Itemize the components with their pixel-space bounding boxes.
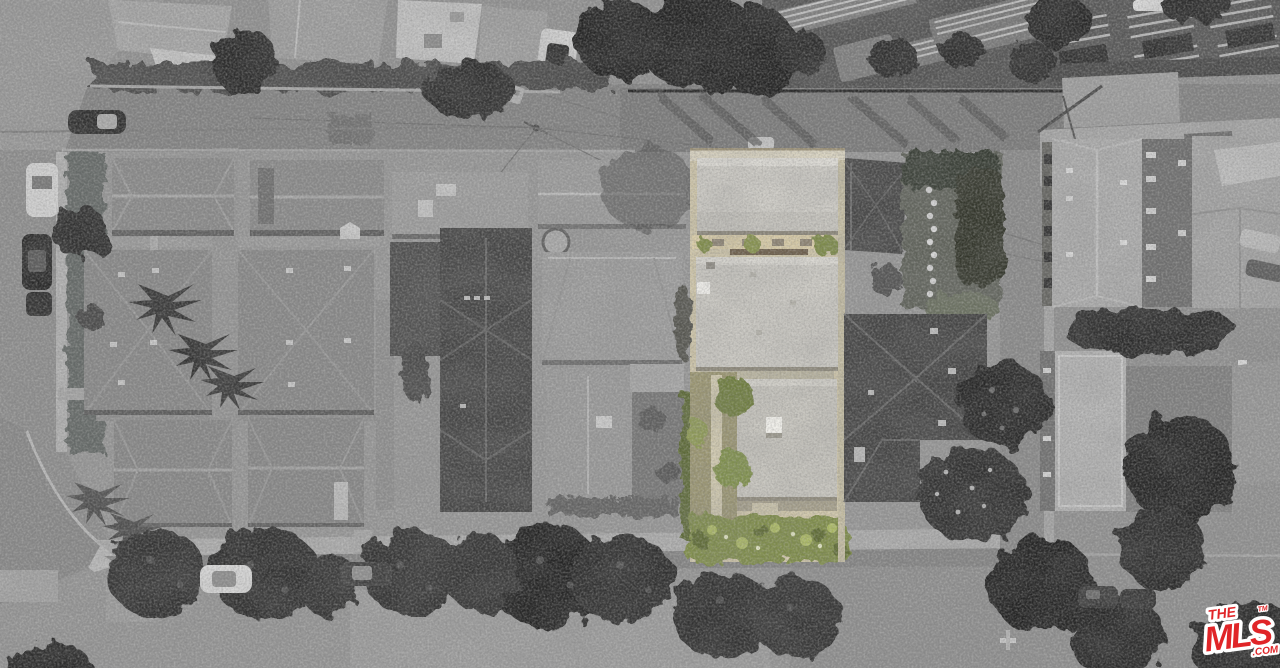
svg-text:TM: TM — [1257, 605, 1268, 613]
